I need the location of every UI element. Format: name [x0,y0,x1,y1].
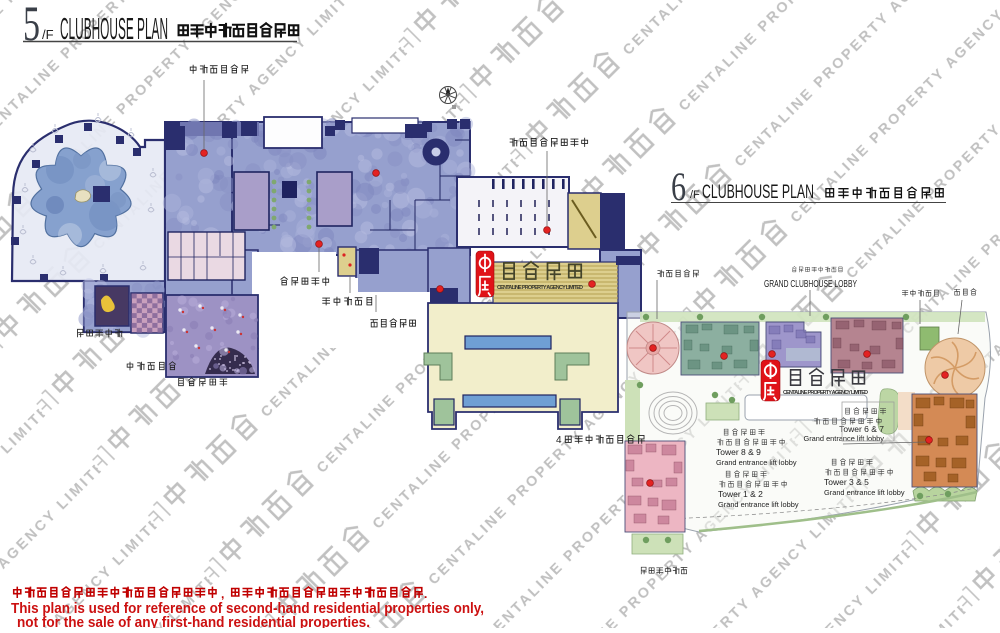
svg-text:5: 5 [23,0,40,51]
svg-text:Grand entrance lift lobby: Grand entrance lift lobby [803,434,884,443]
svg-text:4: 4 [556,435,562,446]
svg-text:/F: /F [690,189,700,201]
svg-text:GRAND CLUBHOUSE LOBBY: GRAND CLUBHOUSE LOBBY [764,279,857,290]
svg-text:Tower 8 & 9: Tower 8 & 9 [716,447,761,457]
svg-text:Grand entrance lift lobby: Grand entrance lift lobby [824,488,905,497]
svg-text:Grand entrance lift lobby: Grand entrance lift lobby [716,458,797,467]
svg-text:CLUBHOUSE PLAN: CLUBHOUSE PLAN [702,182,814,203]
svg-text:CLUBHOUSE PLAN: CLUBHOUSE PLAN [60,11,168,46]
svg-text:.: . [424,587,427,601]
svg-text:not for the sale of any first-: not for the sale of any first-hand resid… [17,615,370,628]
svg-text:Tower 1 & 2: Tower 1 & 2 [718,489,763,499]
svg-text:Tower 6 & 7: Tower 6 & 7 [839,424,884,434]
svg-text:CENTALINE PROPERTY AGENCY LIMI: CENTALINE PROPERTY AGENCY LIMITED [783,390,868,396]
svg-text:Grand entrance lift lobby: Grand entrance lift lobby [718,500,799,509]
svg-text:CENTALINE PROPERTY AGENCY LIMI: CENTALINE PROPERTY AGENCY LIMITED [497,285,583,291]
svg-text:/F: /F [42,27,54,42]
svg-text:Tower 3 & 5: Tower 3 & 5 [824,477,869,487]
svg-text:,: , [221,587,224,601]
